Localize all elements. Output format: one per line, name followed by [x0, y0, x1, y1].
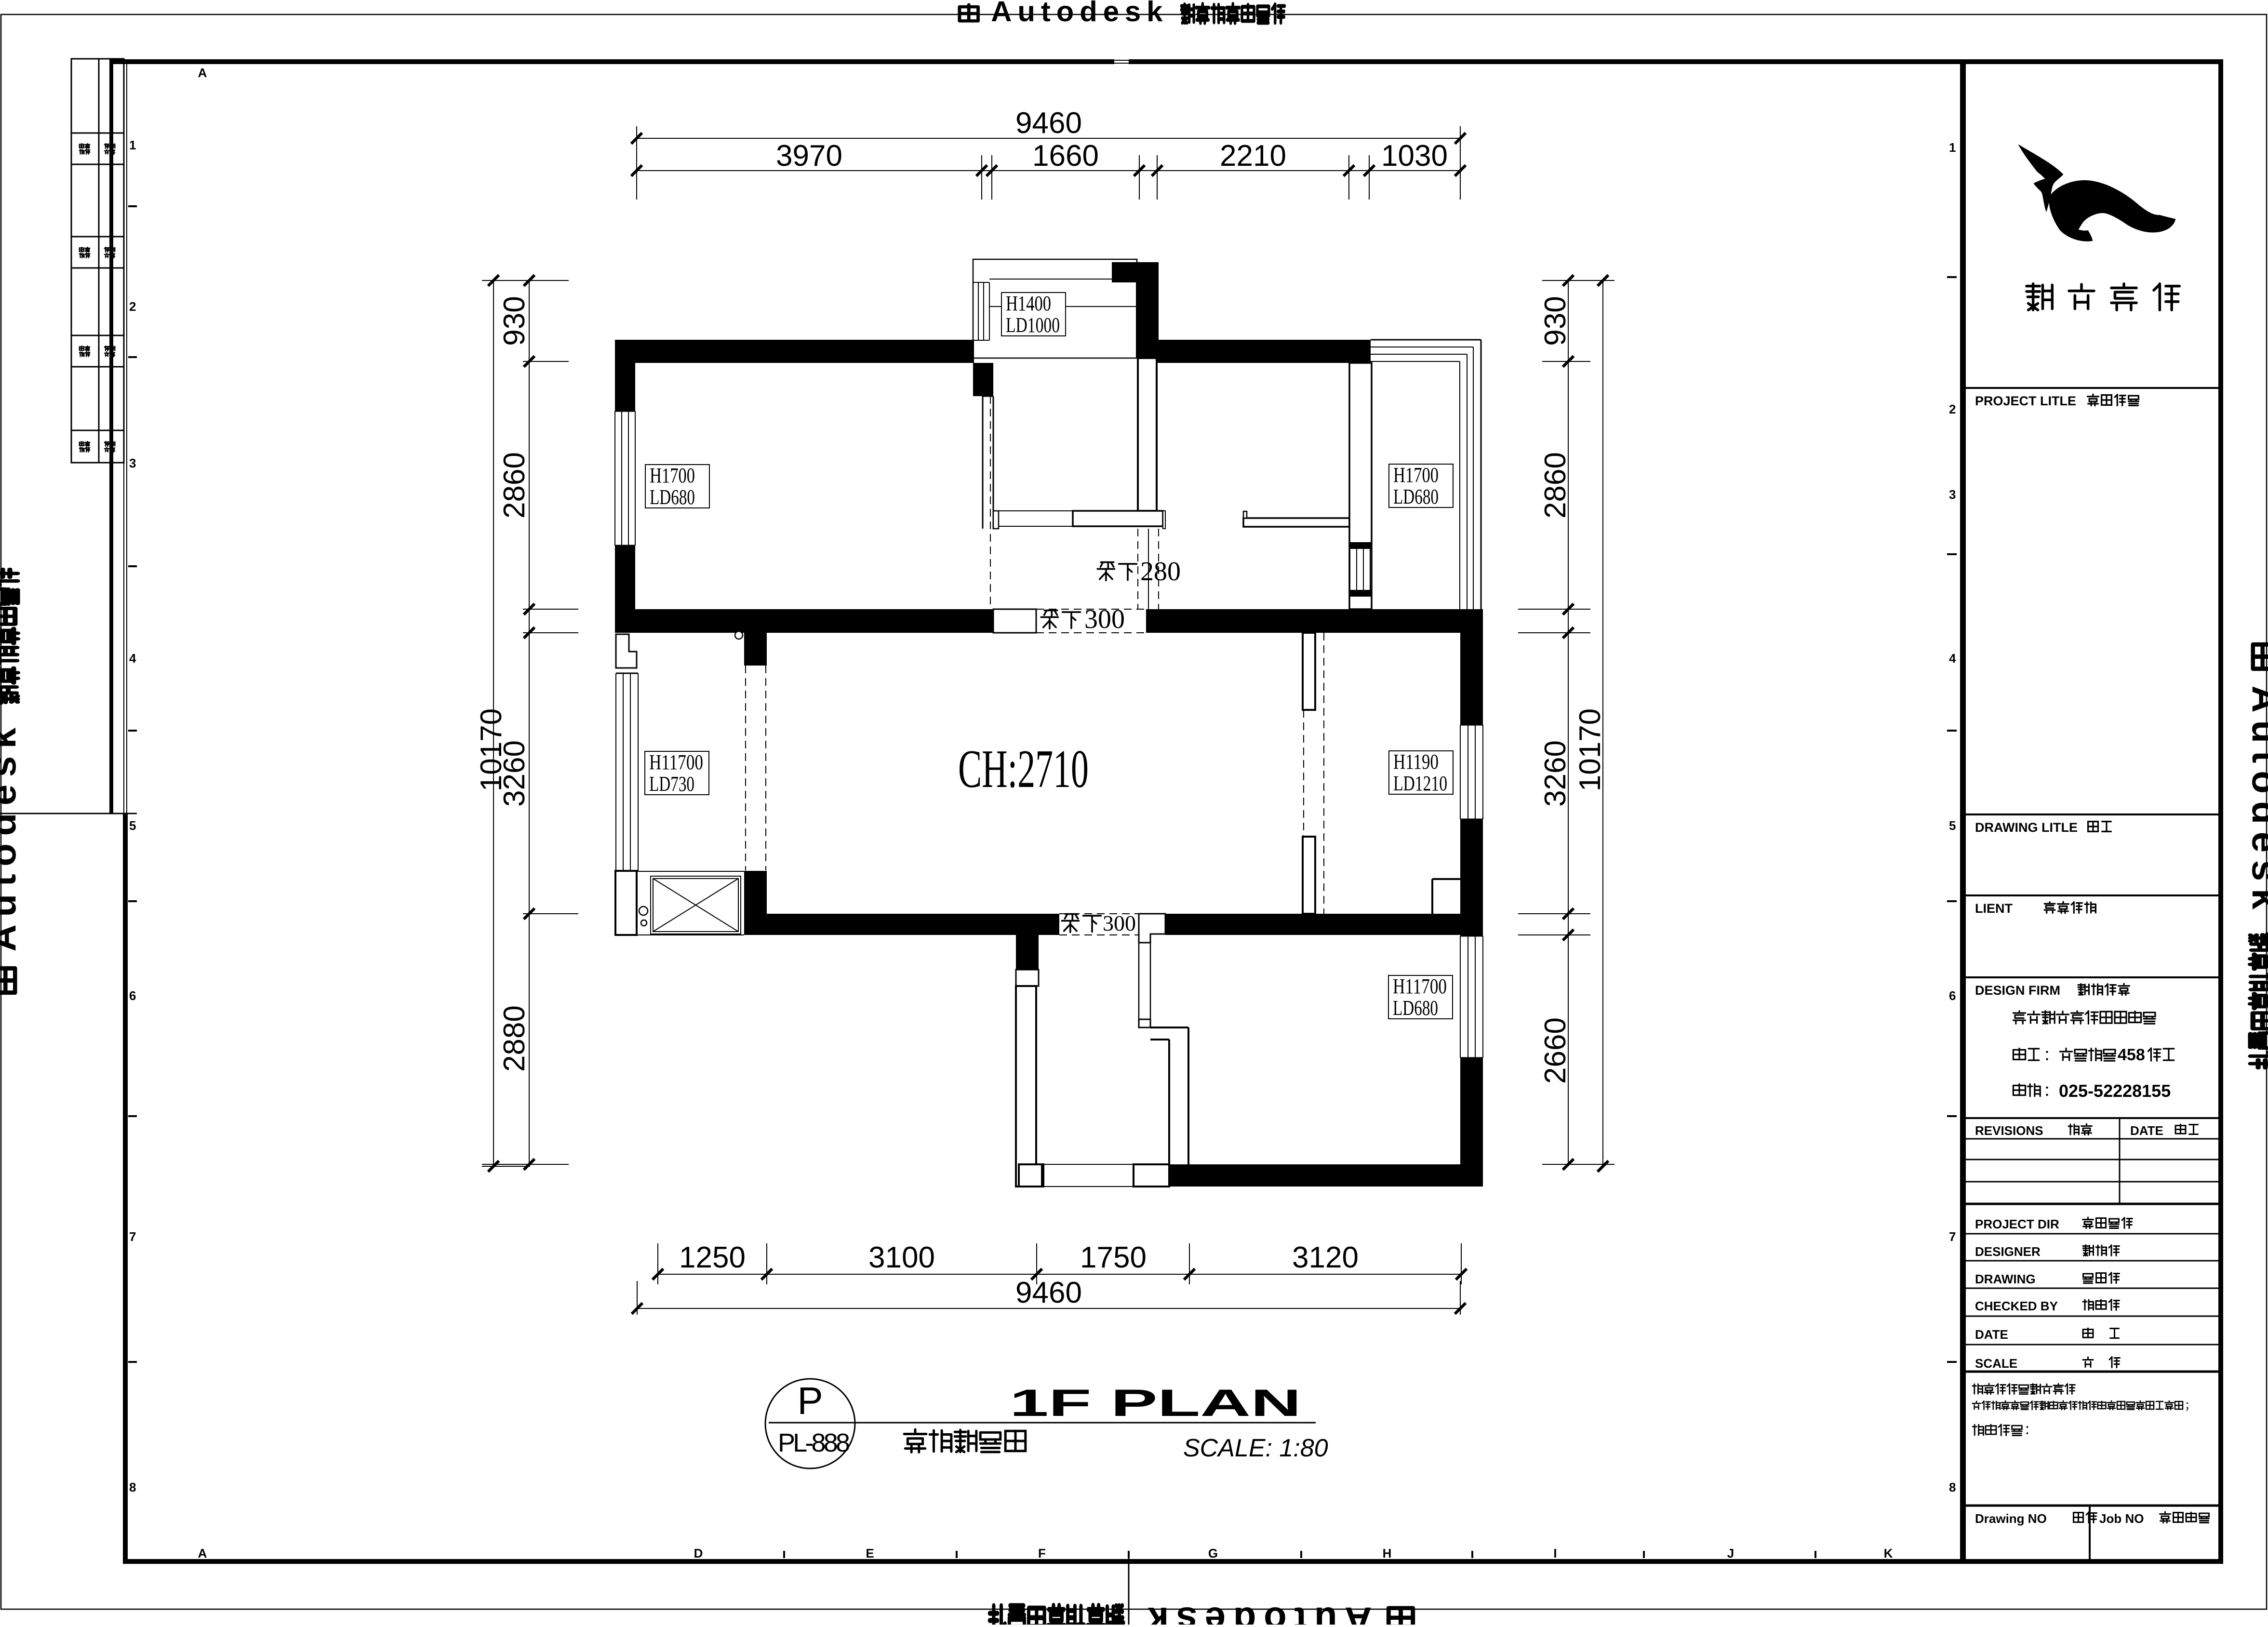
svg-text:1030: 1030: [1381, 139, 1448, 173]
svg-text:K: K: [1884, 1546, 1893, 1560]
svg-text:7: 7: [129, 1229, 136, 1244]
svg-text:H11700: H11700: [1393, 974, 1447, 998]
svg-text:LD1210: LD1210: [1393, 772, 1447, 795]
svg-text:930: 930: [498, 296, 531, 346]
svg-text:300: 300: [1084, 604, 1125, 634]
svg-text:CHECKED BY: CHECKED BY: [1975, 1299, 2058, 1313]
svg-text:PROJECT DIR: PROJECT DIR: [1975, 1217, 2059, 1231]
svg-text:2660: 2660: [1539, 1017, 1572, 1084]
svg-text:CH:2710: CH:2710: [958, 739, 1089, 799]
svg-text:LD680: LD680: [650, 485, 695, 509]
svg-text:2210: 2210: [1220, 139, 1286, 173]
svg-text:10170: 10170: [475, 708, 508, 791]
svg-text:G: G: [1208, 1546, 1218, 1560]
svg-text:1F PLAN: 1F PLAN: [1010, 1381, 1301, 1424]
svg-text:SCALE: 1:80: SCALE: 1:80: [1183, 1434, 1328, 1462]
svg-text:2860: 2860: [498, 452, 531, 519]
svg-text:DATE: DATE: [2130, 1123, 2163, 1138]
svg-text:Autodesk: Autodesk: [2244, 685, 2268, 917]
svg-text:10170: 10170: [1574, 708, 1607, 791]
svg-text:9460: 9460: [1015, 1276, 1082, 1309]
svg-text:DRAWING: DRAWING: [1975, 1272, 2036, 1286]
svg-text:8: 8: [1949, 1480, 1956, 1494]
svg-text:LD680: LD680: [1393, 485, 1439, 508]
svg-text:DATE: DATE: [1975, 1327, 2008, 1342]
svg-text:5: 5: [1949, 818, 1956, 833]
svg-text:Drawing NO: Drawing NO: [1975, 1511, 2047, 1526]
svg-text:4: 4: [1949, 651, 1956, 666]
svg-text:P: P: [797, 1379, 823, 1422]
svg-text:PL-888: PL-888: [778, 1428, 850, 1457]
svg-text:：: ：: [2024, 1423, 2037, 1437]
svg-text:3970: 3970: [776, 139, 842, 173]
svg-text:F: F: [1038, 1546, 1046, 1560]
svg-text:300: 300: [1103, 911, 1136, 935]
svg-text:3260: 3260: [1539, 740, 1572, 807]
svg-text:；: ；: [2185, 1400, 2195, 1412]
svg-text:2860: 2860: [1539, 452, 1572, 519]
svg-text:A: A: [198, 1546, 207, 1560]
svg-text:H1190: H1190: [1393, 750, 1439, 773]
svg-text:PROJECT LITLE: PROJECT LITLE: [1975, 394, 2076, 408]
svg-text:4: 4: [129, 651, 136, 666]
svg-text:LD730: LD730: [649, 772, 694, 796]
svg-text:A: A: [198, 66, 207, 80]
svg-text:DRAWING LITLE: DRAWING LITLE: [1975, 820, 2078, 835]
svg-text:458: 458: [2118, 1046, 2145, 1064]
svg-text:5: 5: [129, 818, 136, 833]
svg-text:2: 2: [129, 299, 136, 314]
svg-text:H1700: H1700: [1393, 463, 1439, 487]
svg-text:2880: 2880: [498, 1005, 531, 1072]
svg-text:I: I: [1553, 1546, 1557, 1560]
svg-text:LIENT: LIENT: [1975, 901, 2013, 916]
svg-text:3100: 3100: [868, 1241, 935, 1274]
svg-text:H1400: H1400: [1006, 292, 1051, 315]
svg-text:6: 6: [1949, 988, 1956, 1003]
svg-text:6: 6: [129, 988, 136, 1003]
svg-text:Autodesk: Autodesk: [0, 720, 24, 951]
svg-text:：: ：: [2043, 1048, 2058, 1064]
svg-text:SCALE: SCALE: [1975, 1356, 2017, 1371]
svg-text:H11700: H11700: [649, 750, 703, 774]
svg-text:Autodesk: Autodesk: [1140, 1600, 1372, 1625]
svg-text:Job NO: Job NO: [2099, 1511, 2144, 1526]
svg-text:1: 1: [1949, 140, 1956, 155]
svg-text:280: 280: [1140, 557, 1181, 587]
svg-text:7: 7: [1949, 1229, 1956, 1244]
svg-text:LD680: LD680: [1393, 996, 1438, 1020]
svg-text:3120: 3120: [1292, 1241, 1359, 1274]
svg-text:2: 2: [1949, 402, 1956, 416]
svg-text:930: 930: [1539, 296, 1572, 346]
svg-text:LD1000: LD1000: [1006, 313, 1060, 337]
svg-text:1: 1: [129, 138, 136, 152]
svg-text:H: H: [1383, 1546, 1392, 1560]
svg-text:E: E: [866, 1546, 874, 1560]
svg-text:DESIGNER: DESIGNER: [1975, 1244, 2041, 1259]
svg-text:REVISIONS: REVISIONS: [1975, 1123, 2043, 1138]
svg-text:1660: 1660: [1032, 139, 1099, 173]
svg-text:J: J: [1727, 1546, 1734, 1560]
svg-text:H1700: H1700: [650, 464, 695, 487]
svg-text:3: 3: [1949, 487, 1956, 502]
svg-text:8: 8: [129, 1480, 136, 1494]
svg-text:DESIGN FIRM: DESIGN FIRM: [1975, 983, 2060, 998]
svg-text:1750: 1750: [1080, 1241, 1147, 1274]
svg-text:3: 3: [129, 456, 136, 470]
svg-text:：: ：: [2043, 1083, 2058, 1099]
svg-text:1250: 1250: [679, 1241, 746, 1274]
svg-text:9460: 9460: [1015, 107, 1082, 140]
svg-text:Autodesk: Autodesk: [991, 0, 1168, 27]
svg-text:025-52228155: 025-52228155: [2059, 1081, 2171, 1101]
svg-text:D: D: [694, 1546, 703, 1560]
